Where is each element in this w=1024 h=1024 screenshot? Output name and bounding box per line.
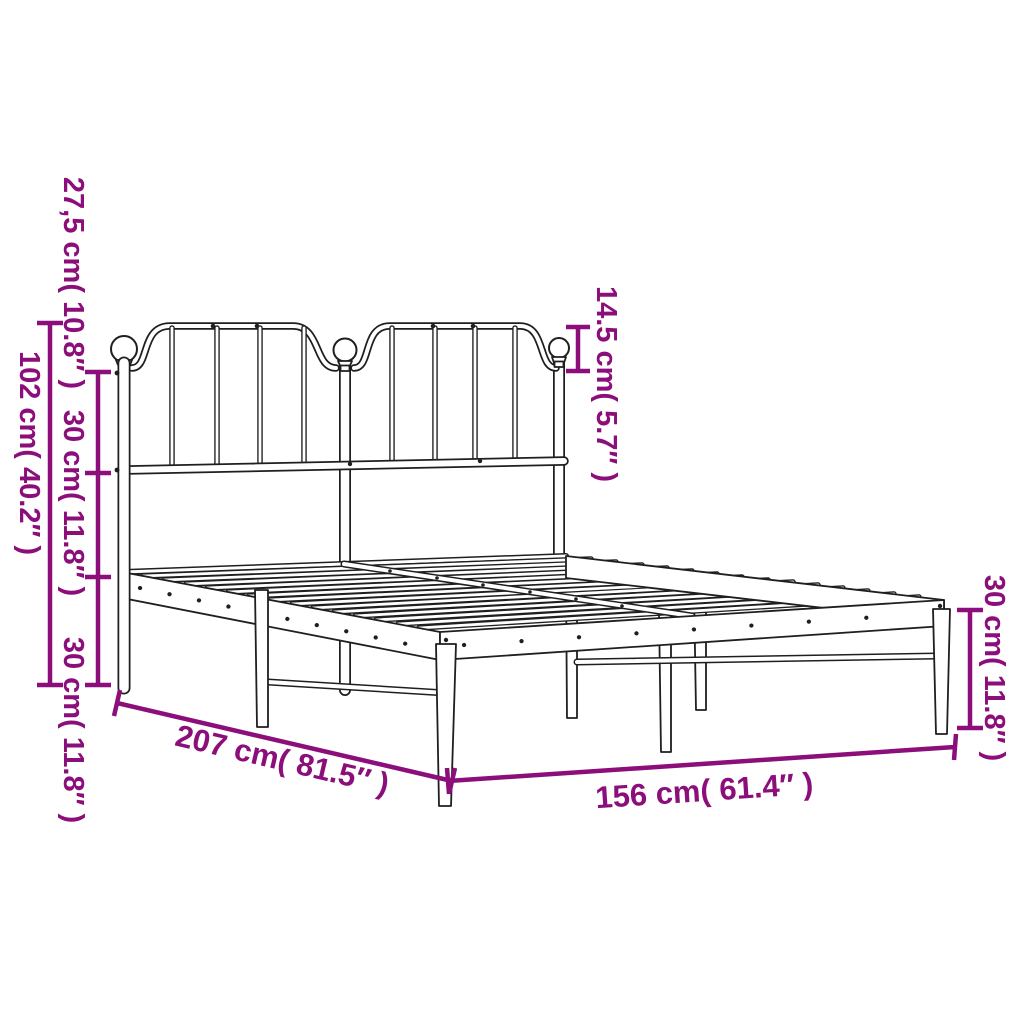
dim-label-finial-height: 14.5 cm( 5.7″ ) [590, 286, 622, 482]
dimension-annotations: 27,5 cm( 10.8″ ) 30 cm( 11.8″ ) 30 cm( 1… [13, 177, 1010, 823]
weld-dot [481, 583, 485, 587]
finial-ball-middle [334, 339, 357, 362]
product-dimension-image: 27,5 cm( 10.8″ ) 30 cm( 11.8″ ) 30 cm( 1… [0, 0, 1024, 1024]
support-braces-inner [268, 656, 937, 693]
weld-dot [255, 324, 260, 329]
bed-diagram-svg: 27,5 cm( 10.8″ ) 30 cm( 11.8″ ) 30 cm( 1… [0, 0, 1024, 1024]
weld-dot [435, 576, 439, 580]
slatted-base [122, 556, 944, 660]
finial-ball-right [549, 338, 569, 358]
dim-label-headboard-total-height: 102 cm( 40.2″ ) [13, 351, 45, 555]
dim-label-headboard-lower-section: 30 cm( 11.8″ ) [57, 637, 89, 823]
dim-label-bed-width: 156 cm( 61.4″ ) [594, 766, 814, 815]
weld-dot [528, 590, 532, 594]
dim-label-headboard-top-drop: 27,5 cm( 10.8″ ) [57, 177, 89, 389]
weld-dot [471, 324, 476, 329]
weld-dot [620, 604, 624, 608]
weld-dot [115, 371, 120, 376]
dim-label-headboard-upper-section: 30 cm( 11.8″ ) [57, 410, 89, 596]
dim-label-frame-height: 30 cm( 11.8″ ) [978, 575, 1010, 761]
weld-dot [115, 468, 120, 473]
weld-dot [431, 324, 436, 329]
weld-dot [574, 597, 578, 601]
rivet [444, 638, 448, 642]
weld-dot [388, 569, 392, 573]
weld-dot [211, 324, 216, 329]
weld-dot [478, 459, 482, 463]
dim-label-bed-length: 207 cm( 81.5″ ) [172, 718, 392, 802]
rivet [938, 604, 942, 608]
weld-dot [348, 462, 352, 466]
